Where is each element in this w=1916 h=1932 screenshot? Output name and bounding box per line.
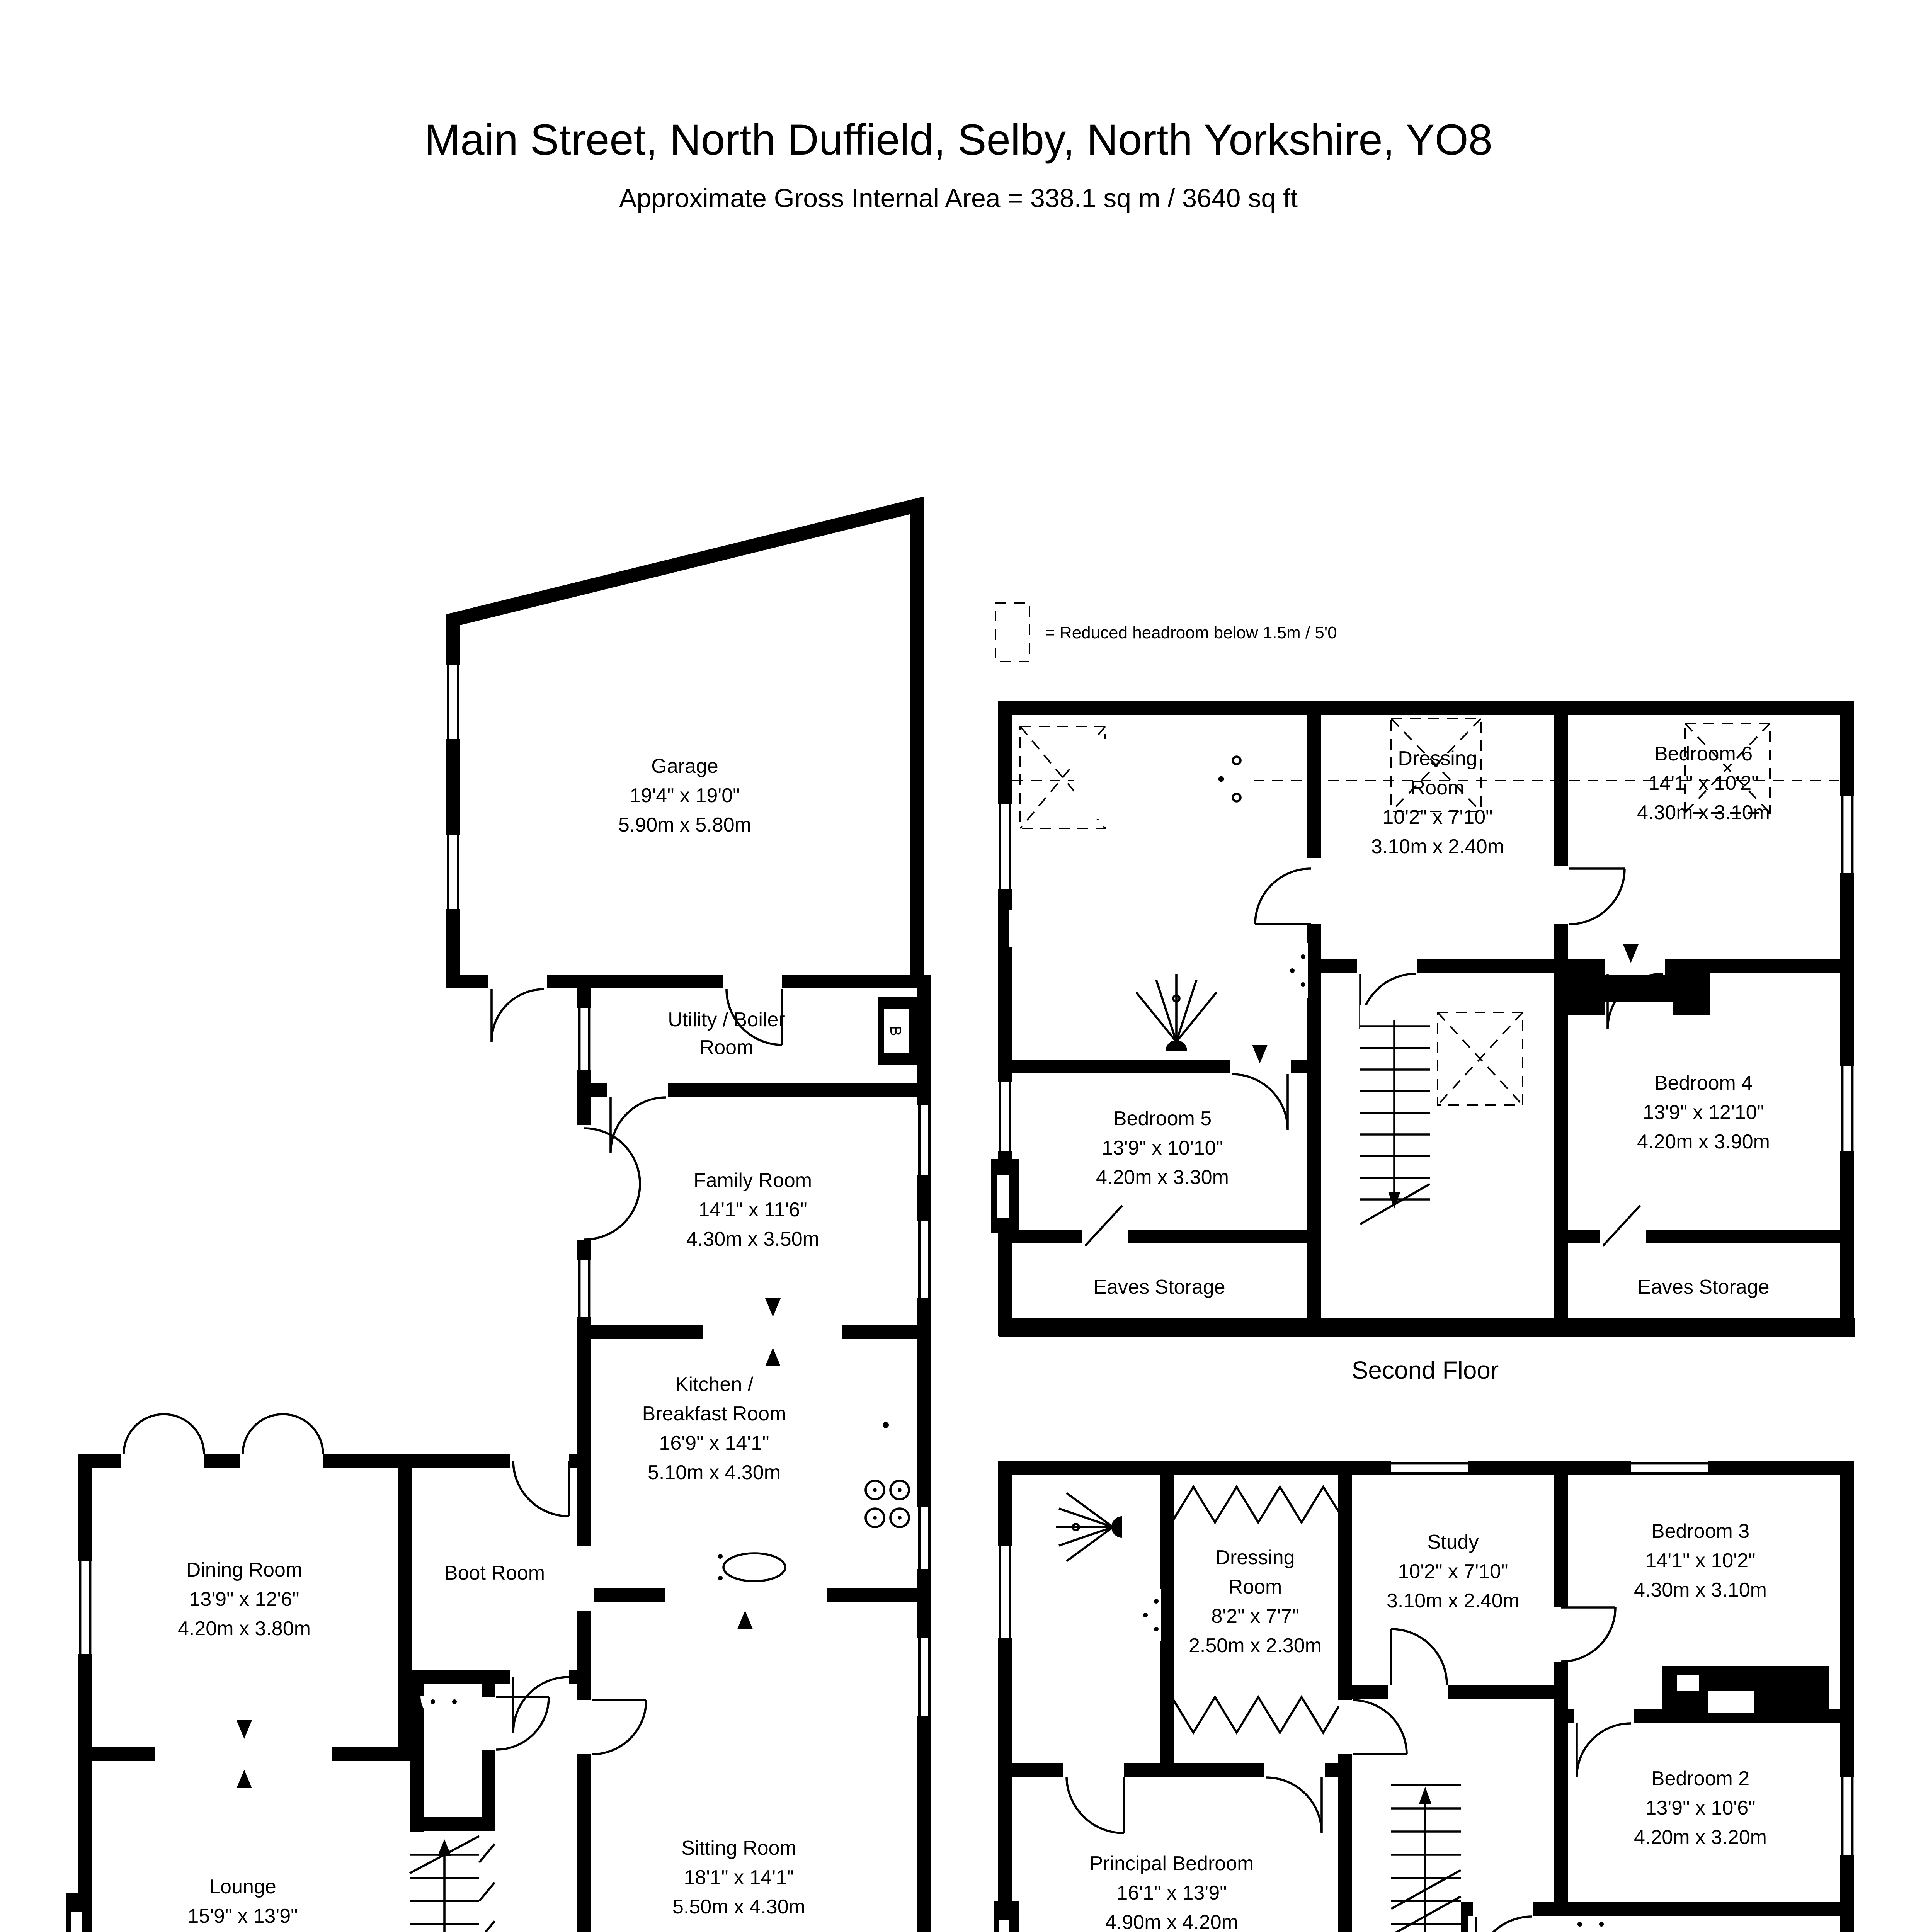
garage-door-icon (903, 564, 910, 920)
bedroom2-label: Bedroom 2 13'9" x 10'6" 4.20m x 3.20m (1634, 1767, 1767, 1849)
svg-text:10'2" x 7'10": 10'2" x 7'10" (1382, 806, 1492, 828)
svg-text:18'1" x 14'1": 18'1" x 14'1" (684, 1866, 794, 1889)
svg-text:16'1" x 13'9": 16'1" x 13'9" (1116, 1882, 1227, 1904)
svg-text:3.10m x 2.40m: 3.10m x 2.40m (1387, 1590, 1520, 1612)
fireplace-icon (66, 1893, 91, 1932)
boot-room-label: Boot Room (444, 1562, 545, 1584)
window (914, 1507, 934, 1569)
svg-text:13'9" x 10'6": 13'9" x 10'6" (1645, 1797, 1755, 1819)
svg-text:4.20m x 3.90m: 4.20m x 3.90m (1637, 1131, 1770, 1153)
svg-text:19'4" x 19'0": 19'4" x 19'0" (630, 784, 740, 807)
svg-text:Dressing: Dressing (1215, 1546, 1295, 1569)
sink-icon (863, 1376, 909, 1431)
window (914, 1105, 934, 1175)
svg-text:5.50m x 4.30m: 5.50m x 4.30m (672, 1896, 805, 1918)
svg-text:Principal Bedroom: Principal Bedroom (1090, 1852, 1254, 1875)
window (995, 1082, 1015, 1151)
bath-icon (1074, 739, 1252, 819)
basin-icon (1569, 1918, 1615, 1932)
svg-text:8'2" x 7'7": 8'2" x 7'7" (1211, 1605, 1299, 1628)
legend-label: = Reduced headroom below 1.5m / 5'0 (1045, 623, 1337, 642)
first-floor-plan: Principal Bedroom 16'1" x 13'9" 4.90m x … (994, 1458, 1857, 1932)
legend: = Reduced headroom below 1.5m / 5'0 (995, 603, 1337, 662)
svg-text:Room: Room (1411, 777, 1465, 799)
room-garage (453, 505, 917, 981)
svg-text:Utility / Boiler: Utility / Boiler (668, 1009, 785, 1031)
window (1837, 1777, 1857, 1855)
svg-text:4.30m x 3.10m: 4.30m x 3.10m (1634, 1579, 1767, 1601)
svg-text:15'9" x 13'9": 15'9" x 13'9" (187, 1905, 298, 1927)
second-floor-label: Second Floor (1352, 1356, 1499, 1384)
svg-text:5.10m x 4.30m: 5.10m x 4.30m (648, 1461, 781, 1484)
svg-text:Bedroom 6: Bedroom 6 (1654, 743, 1753, 765)
dining-room-label: Dining Room 13'9" x 12'6" 4.20m x 3.80m (178, 1559, 311, 1640)
window (995, 804, 1015, 889)
svg-text:Bedroom 5: Bedroom 5 (1113, 1107, 1212, 1130)
kitchen-counter (853, 1340, 917, 1556)
svg-text:14'1" x 11'6": 14'1" x 11'6" (698, 1199, 807, 1221)
chimney-breast (991, 1159, 1019, 1233)
svg-text:3.10m x 2.40m: 3.10m x 2.40m (1371, 835, 1504, 858)
stairs-icon (1360, 1005, 1430, 1224)
svg-text:Dressing: Dressing (1398, 747, 1477, 770)
svg-text:14'1" x 10'2": 14'1" x 10'2" (1645, 1549, 1755, 1572)
sitting-room-label: Sitting Room 18'1" x 14'1" 5.50m x 4.30m (672, 1837, 805, 1918)
french-doors (121, 1414, 204, 1471)
eaves-base-wall (999, 1318, 1855, 1337)
svg-text:4.20m x 3.80m: 4.20m x 3.80m (178, 1617, 311, 1640)
boiler-icon: B (878, 997, 917, 1065)
eaves-left-label: Eaves Storage (1093, 1276, 1225, 1298)
page-title: Main Street, North Duffield, Selby, Nort… (424, 116, 1492, 164)
svg-text:Kitchen /: Kitchen / (675, 1373, 754, 1396)
fireplace-icon (994, 1901, 1019, 1932)
bedroom6-label: Bedroom 6 14'1" x 10'2" 4.30m x 3.10m (1637, 743, 1770, 824)
wardrobe-block (1662, 1666, 1829, 1713)
svg-text:Room: Room (700, 1036, 754, 1059)
window (574, 1260, 594, 1317)
window (443, 835, 463, 909)
shower-icon (1125, 955, 1227, 1057)
ground-floor-plan: B IN Garage 19'4" x 19'0" 5.90m x 5.80m … (66, 505, 934, 1932)
family-room-label: Family Room 14'1" x 11'6" 4.30m x 3.50m (686, 1169, 819, 1250)
svg-text:4.90m x 4.20m: 4.90m x 4.20m (1105, 1911, 1238, 1932)
svg-text:2.50m x 2.30m: 2.50m x 2.30m (1189, 1634, 1322, 1657)
door (488, 972, 547, 1042)
svg-text:Garage: Garage (651, 755, 718, 777)
wc-toilet-icon (431, 1765, 458, 1815)
stairs-icon (1391, 1762, 1461, 1932)
svg-text:13'9" x 12'10": 13'9" x 12'10" (1643, 1101, 1764, 1124)
svg-text:Room: Room (1229, 1576, 1282, 1598)
window (914, 1638, 934, 1716)
window (75, 1561, 95, 1654)
window (1631, 1458, 1708, 1478)
eaves-right-label: Eaves Storage (1637, 1276, 1769, 1298)
floorplan-svg: Main Street, North Duffield, Selby, Nort… (0, 0, 1916, 1932)
window (995, 1546, 1015, 1638)
second-floor-plan: Dressing Room 10'2" x 7'10" 3.10m x 2.40… (991, 708, 1857, 1384)
header: Main Street, North Duffield, Selby, Nort… (424, 116, 1492, 213)
svg-text:Bedroom 2: Bedroom 2 (1651, 1767, 1749, 1790)
svg-text:14'1" x 10'2": 14'1" x 10'2" (1648, 772, 1758, 794)
svg-text:Sitting Room: Sitting Room (681, 1837, 796, 1859)
bedroom4-label: Bedroom 4 13'9" x 12'10" 4.20m x 3.90m (1637, 1072, 1770, 1153)
svg-text:16'9" x 14'1": 16'9" x 14'1" (659, 1432, 769, 1454)
room-utility (584, 981, 924, 1090)
window (443, 665, 463, 739)
svg-text:4.20m x 3.30m: 4.20m x 3.30m (1096, 1166, 1229, 1189)
window (914, 1221, 934, 1298)
boiler-label: B (887, 1026, 904, 1036)
svg-text:4.30m x 3.50m: 4.30m x 3.50m (686, 1228, 819, 1250)
room-principal-bedroom (1005, 1770, 1345, 1932)
window (574, 1008, 594, 1070)
svg-text:Breakfast Room: Breakfast Room (642, 1403, 786, 1425)
bedroom5-label: Bedroom 5 13'9" x 10'10" 4.20m x 3.30m (1096, 1107, 1229, 1189)
svg-text:Bedroom 4: Bedroom 4 (1654, 1072, 1753, 1094)
svg-text:4.30m x 3.10m: 4.30m x 3.10m (1637, 801, 1770, 824)
svg-text:5.90m x 5.80m: 5.90m x 5.80m (618, 814, 751, 836)
reduced-headroom-icon (995, 603, 1029, 662)
svg-text:Lounge: Lounge (209, 1876, 276, 1898)
window (1391, 1458, 1468, 1478)
svg-text:Study: Study (1428, 1531, 1479, 1553)
stairs-icon (410, 1832, 495, 1932)
room-landing-2f (1314, 966, 1561, 1329)
window (1837, 1066, 1857, 1151)
french-doors (240, 1414, 323, 1471)
svg-text:4.20m x 3.20m: 4.20m x 3.20m (1634, 1826, 1767, 1849)
svg-text:13'9" x 10'10": 13'9" x 10'10" (1102, 1137, 1223, 1159)
svg-text:Dining Room: Dining Room (186, 1559, 303, 1581)
window (1837, 796, 1857, 873)
opening (574, 1546, 594, 1611)
svg-text:Bedroom 3: Bedroom 3 (1651, 1520, 1749, 1543)
page-subtitle: Approximate Gross Internal Area = 338.1 … (619, 184, 1298, 213)
svg-text:10'2" x 7'10": 10'2" x 7'10" (1398, 1560, 1508, 1583)
svg-text:13'9" x 12'6": 13'9" x 12'6" (189, 1588, 299, 1611)
svg-text:Family Room: Family Room (694, 1169, 812, 1192)
bedroom3-label: Bedroom 3 14'1" x 10'2" 4.30m x 3.10m (1634, 1520, 1767, 1601)
range-cooker-icon (708, 1546, 801, 1589)
